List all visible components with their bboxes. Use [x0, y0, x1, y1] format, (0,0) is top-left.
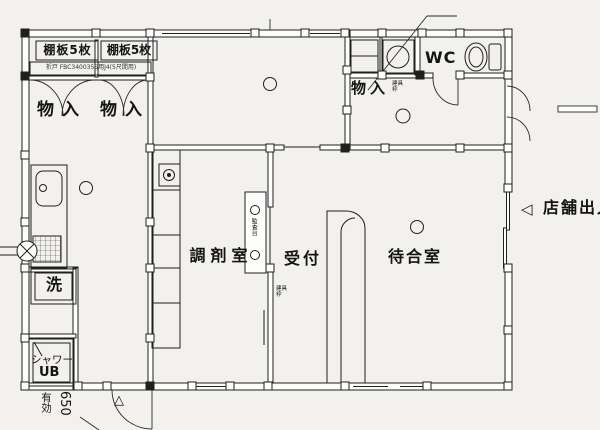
light-icon	[396, 109, 410, 123]
unit-bath-label: UB	[39, 366, 59, 380]
light-icon	[411, 221, 424, 234]
walls	[22, 30, 512, 390]
effective-width-label: 有効	[40, 392, 51, 413]
faucet-icon	[40, 185, 47, 192]
fitting-frame-note-mid: 建具枠	[276, 287, 289, 299]
exterior-step	[558, 106, 597, 112]
storage-label-top: 物入	[347, 81, 393, 97]
wc-door-arc	[433, 78, 458, 105]
fitting-frame-note-top: 建具枠	[392, 82, 405, 94]
wc-label: WC	[425, 50, 456, 67]
light-icon	[264, 78, 277, 91]
reception-counter	[327, 211, 365, 383]
room-label-reception: 受付	[281, 251, 325, 268]
entrance-arrow-icon: ◁	[521, 202, 533, 218]
room-label-waiting: 待合室	[385, 249, 445, 266]
site-line	[80, 417, 99, 430]
wash-label: 洗	[40, 277, 68, 294]
closet-label-right: 物入	[93, 102, 157, 120]
effective-width-value: 650	[57, 391, 71, 416]
toilet-tank	[489, 44, 501, 70]
floor-plan: 棚板5枚 棚板5枚 折戸 FBC340035S用J4(5尺間用) 物入 物入 物…	[0, 0, 600, 430]
shelf-label-right: 棚板5枚	[101, 44, 157, 57]
door-arcs	[30, 78, 530, 430]
water-heater-icon	[387, 46, 409, 68]
shelf-label-left: 棚板5枚	[37, 44, 98, 57]
light-icon	[80, 182, 93, 195]
closet-label-left: 物入	[30, 102, 94, 120]
fan-icon	[0, 241, 37, 261]
door-spec-note: 折戸 FBC340035S用J4(5尺間用)	[32, 65, 150, 71]
room-label-dispensary: 調剤室	[184, 248, 258, 265]
store-entrance-label: 店舗出入口	[543, 200, 600, 217]
inspection-counter-label: 監査台	[250, 218, 256, 236]
triangle-marker: △	[114, 394, 124, 408]
